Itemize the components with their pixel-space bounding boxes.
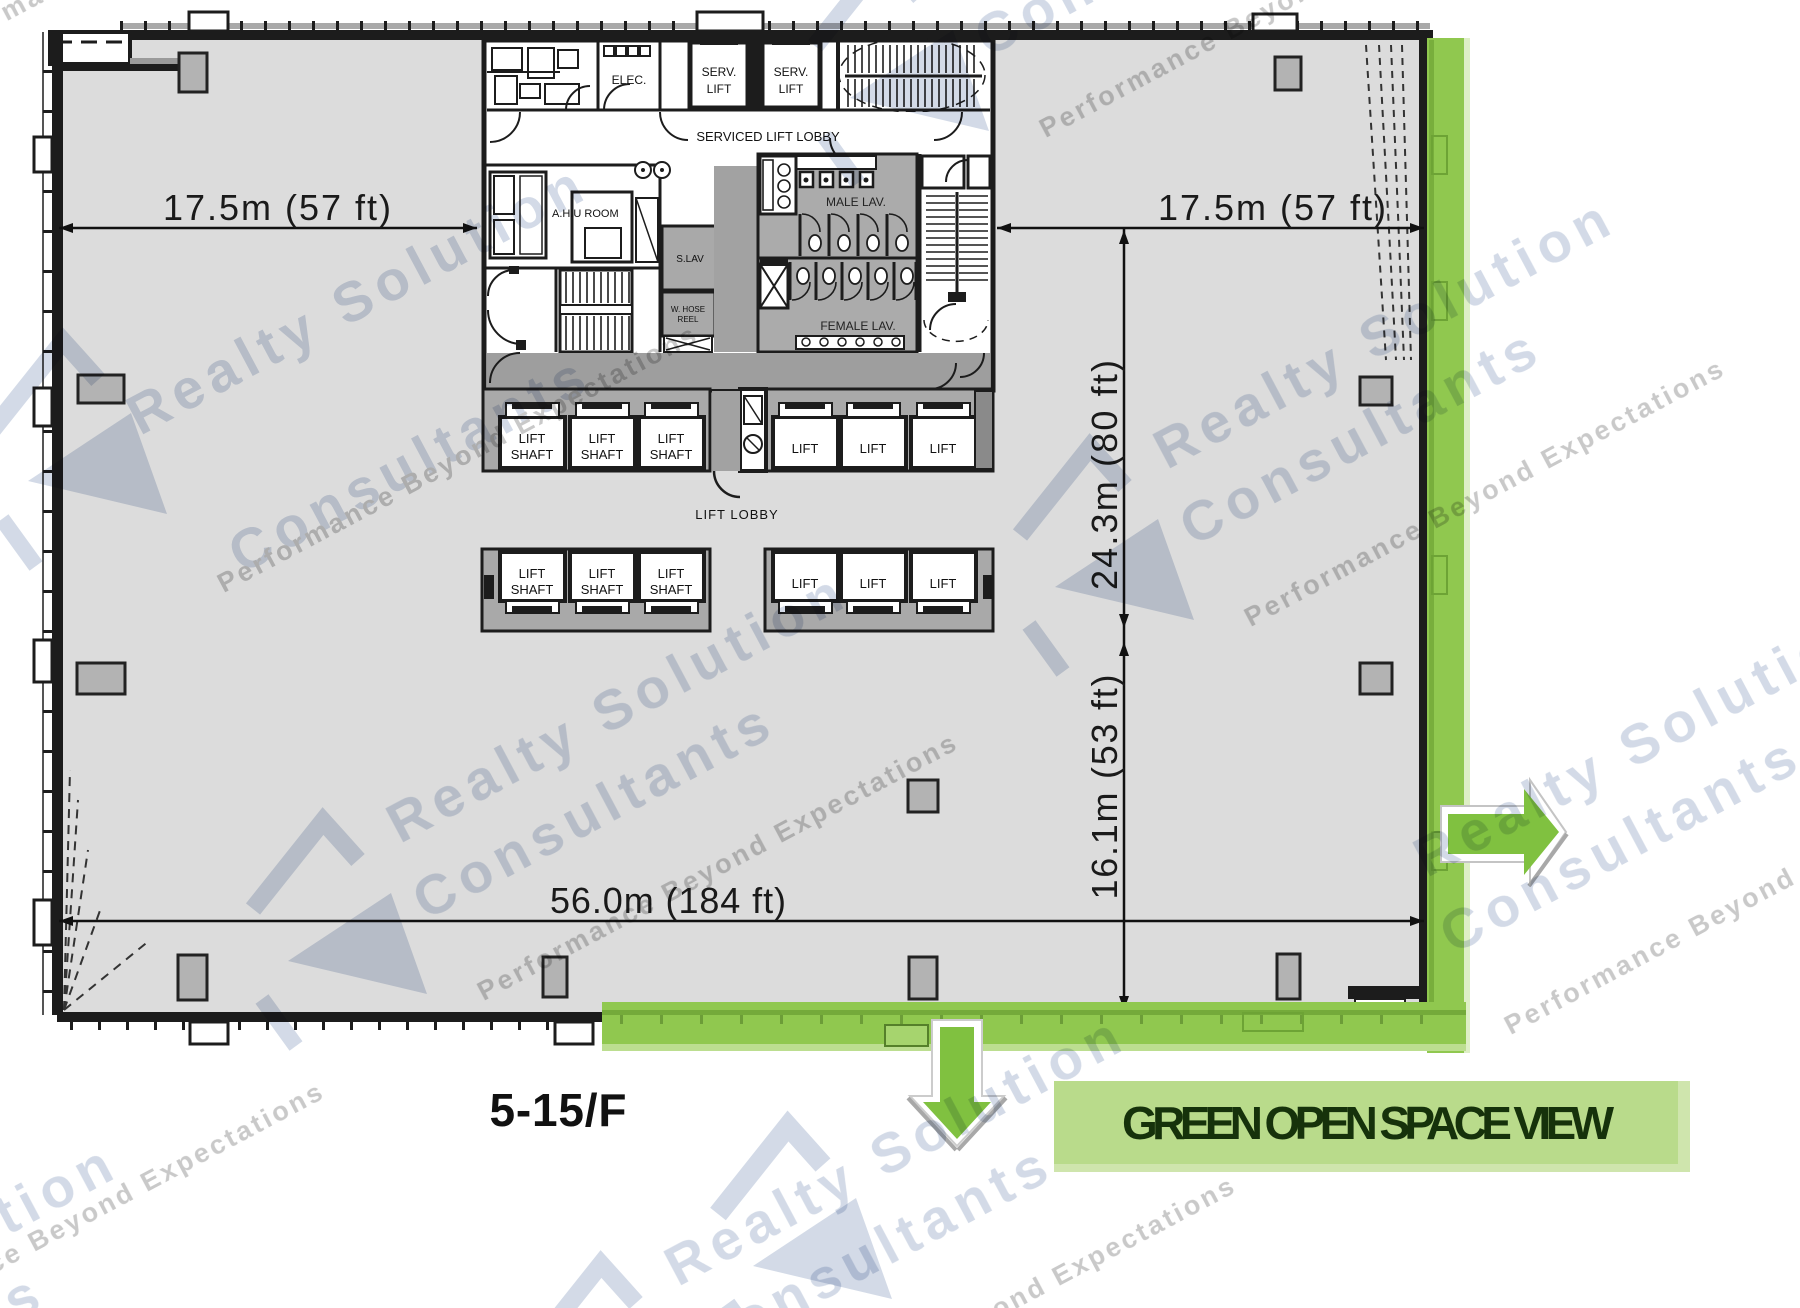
svg-text:SHAFT: SHAFT (650, 582, 693, 597)
svg-text:SERV.: SERV. (702, 65, 737, 79)
svg-text:17.5m (57 ft): 17.5m (57 ft) (163, 187, 391, 228)
svg-text:LIFT: LIFT (658, 566, 685, 581)
svg-text:LIFT: LIFT (589, 566, 616, 581)
svg-text:17.5m (57 ft): 17.5m (57 ft) (1158, 187, 1386, 228)
svg-text:SHAFT: SHAFT (650, 447, 693, 462)
svg-text:LIFT: LIFT (860, 441, 887, 456)
svg-text:SHAFT: SHAFT (511, 447, 554, 462)
svg-text:LIFT: LIFT (519, 566, 546, 581)
svg-text:SHAFT: SHAFT (511, 582, 554, 597)
svg-text:LIFT: LIFT (930, 441, 957, 456)
svg-text:LIFT: LIFT (779, 82, 804, 96)
svg-text:LIFT: LIFT (860, 576, 887, 591)
svg-text:LIFT LOBBY: LIFT LOBBY (695, 507, 778, 522)
svg-text:MALE LAV.: MALE LAV. (826, 195, 886, 209)
svg-text:S.LAV: S.LAV (676, 254, 704, 265)
svg-text:FEMALE LAV.: FEMALE LAV. (820, 319, 895, 333)
svg-text:LIFT: LIFT (930, 576, 957, 591)
svg-text:LIFT: LIFT (792, 441, 819, 456)
svg-text:LIFT: LIFT (707, 82, 732, 96)
svg-text:SERV.: SERV. (774, 65, 809, 79)
svg-text:16.1m (53 ft): 16.1m (53 ft) (1084, 675, 1125, 900)
svg-text:LIFT: LIFT (589, 431, 616, 446)
svg-text:W. HOSE: W. HOSE (671, 305, 705, 314)
svg-text:SHAFT: SHAFT (581, 447, 624, 462)
svg-text:SHAFT: SHAFT (581, 582, 624, 597)
svg-text:5-15/F: 5-15/F (490, 1084, 627, 1136)
svg-text:LIFT: LIFT (658, 431, 685, 446)
svg-text:GREEN OPEN SPACE VIEW: GREEN OPEN SPACE VIEW (1122, 1097, 1615, 1149)
